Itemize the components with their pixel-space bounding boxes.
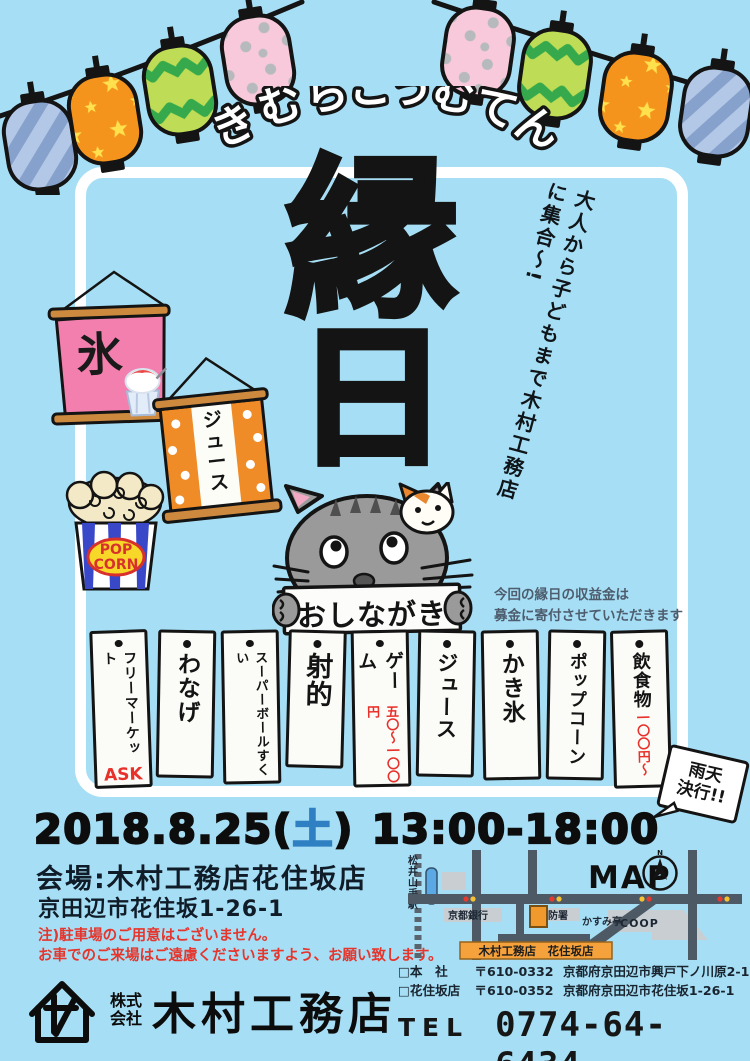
event-day: 土 <box>293 807 335 853</box>
bank-label: 京都銀行 <box>448 909 488 922</box>
donation-note: 今回の縁日の収益金は 募金に寄付させていただきます <box>494 585 683 627</box>
strip-hole-icon <box>443 640 451 648</box>
shop-name-char: む <box>253 86 309 137</box>
company-prefix: 株式 会社 <box>110 992 142 1029</box>
branch-label: □花住坂店 <box>398 982 470 1001</box>
shop-name-char: き <box>204 95 264 158</box>
access-map: 松井山手駅 京都銀行 消防署 かすみ亭 COOP <box>402 848 748 962</box>
lantern-orange-star-icon <box>595 29 679 154</box>
menu-board-title: おしながき <box>288 591 457 636</box>
menu-strip: ポップコーン <box>546 630 607 781</box>
parking-note-1: 注)駐車場のご用意はございません。 <box>38 924 276 945</box>
strip-label: 飲食物 <box>627 652 654 710</box>
kasumitei-label: かすみ亭 <box>582 915 622 928</box>
strip-hole-icon <box>506 640 514 648</box>
venue-address: 京田辺市花住坂1-26-1 <box>38 891 285 923</box>
contact-block: □本 社 〒610-0332 京都府京田辺市興戸下ノ川原2-10 □花住坂店 〒… <box>398 963 750 1061</box>
strip-hole-icon <box>313 640 321 648</box>
head-office-address: 京都府京田辺市興戸下ノ川原2-10 <box>563 964 750 979</box>
menu-strip: 射的 <box>285 629 347 768</box>
shop-name-char: こ <box>347 86 393 115</box>
menu-strip: わなげ <box>156 630 217 779</box>
event-time: 13:00-18:00 <box>372 807 660 853</box>
event-date: 2018.8.25(土) <box>34 797 354 855</box>
strip-label: ゲーム <box>353 650 408 703</box>
popcorn-label-bottom: CORN <box>94 557 139 573</box>
strip-hole-icon <box>115 640 123 648</box>
strip-label: わなげ <box>169 652 204 725</box>
coop-label: COOP <box>620 917 659 930</box>
strip-price: 五〇～一〇〇円 <box>362 705 401 785</box>
head-office-line: □本 社 〒610-0332 京都府京田辺市興戸下ノ川原2-10 <box>398 963 750 982</box>
rain-or-shine-badge: 雨天 決行!! <box>656 744 750 825</box>
head-office-zip: 〒610-0332 <box>474 964 553 979</box>
menu-strip: フリーマーケットASK <box>89 629 152 789</box>
strip-label: 射的 <box>296 652 336 709</box>
strip-label: スーパーボールすくい <box>231 651 271 781</box>
branch-zip: 〒610-0352 <box>474 983 553 998</box>
festival-poster: き む ら こ う む て ん 縁 日 大人から子どもまで木村工務店に集合～! … <box>0 0 750 1061</box>
popcorn-label-top: POP <box>100 542 132 558</box>
shop-name-char: う <box>390 86 435 114</box>
house-logo-icon <box>24 972 100 1048</box>
shop-marker <box>530 906 547 927</box>
tel-number: 0774-64-6434 <box>495 1005 750 1061</box>
strip-hole-icon <box>573 640 581 648</box>
strip-price: 一〇〇円～ <box>632 711 653 776</box>
strip-hole-icon <box>376 640 384 647</box>
menu-strip: ジュース <box>416 630 477 778</box>
tel-label: TEL <box>398 1013 469 1042</box>
small-cat-icon <box>400 482 453 533</box>
shop-label: 木村工務店 花住坂店 <box>478 944 594 958</box>
company-prefix-line2: 会社 <box>110 1010 142 1028</box>
strip-label: ジュース <box>430 652 462 741</box>
branch-line: □花住坂店 〒610-0352 京都府京田辺市花住坂1-26-1 <box>398 982 750 1001</box>
company-prefix-line1: 株式 <box>110 992 142 1010</box>
main-title: 縁 日 <box>283 158 461 472</box>
strip-hole-icon <box>183 640 191 648</box>
strip-label: フリーマーケット <box>99 651 143 764</box>
main-title-char-2: 日 <box>283 325 461 472</box>
head-office-label: □本 社 <box>398 963 470 982</box>
popcorn-icon: POP CORN <box>52 463 182 601</box>
svg-text:N: N <box>657 849 663 857</box>
company-logo: 株式 会社 木村工務店 <box>24 972 397 1048</box>
branch-address: 京都府京田辺市花住坂1-26-1 <box>563 983 734 998</box>
main-title-char-1: 縁 <box>283 158 461 325</box>
menu-strip: かき氷 <box>481 630 542 781</box>
lantern-blue-stripe-icon <box>675 44 750 169</box>
company-name: 木村工務店 <box>152 978 397 1042</box>
parking-note-2: お車でのご来場はご遠慮くださいますよう、お願い致します。 <box>38 944 443 965</box>
menu-strips: フリーマーケットASKわなげスーパーボールすくい射的ゲーム五〇～一〇〇円ジュース… <box>92 630 680 794</box>
strip-label: かき氷 <box>493 652 528 725</box>
menu-strip: スーパーボールすくい <box>221 630 282 785</box>
donation-note-line1: 今回の縁日の収益金は <box>494 585 683 606</box>
strip-hole-icon <box>635 640 643 648</box>
menu-strip: 飲食物一〇〇円～ <box>610 629 672 788</box>
donation-note-line2: 募金に寄付させていただきます <box>494 606 683 627</box>
tel-row: TEL 0774-64-6434 <box>398 1005 750 1061</box>
strip-label: ポップコーン <box>562 652 590 766</box>
strip-hole-icon <box>246 640 254 648</box>
ice-banner-label: 氷 <box>76 327 124 383</box>
event-datetime: 2018.8.25(土) 13:00-18:00 <box>34 797 660 855</box>
shop-name-char: ら <box>302 86 352 123</box>
menu-strip: ゲーム五〇～一〇〇円 <box>351 630 412 788</box>
strip-price: ASK <box>104 764 143 785</box>
